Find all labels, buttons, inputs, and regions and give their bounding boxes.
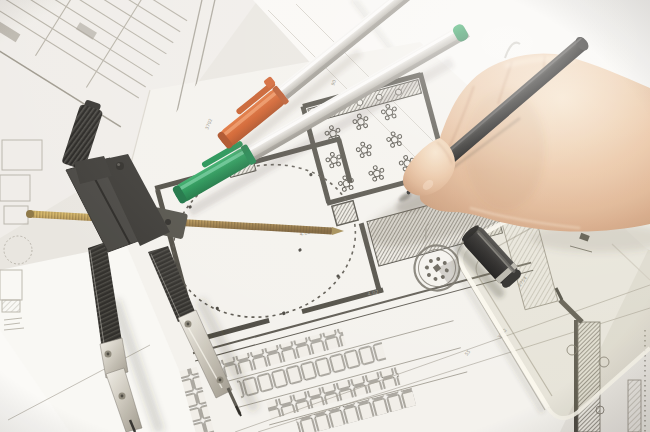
photo-canvas: 3702 365.2 90 4.82 4.02 2754 3762 55 — [0, 0, 650, 432]
photo-scene: 3702 365.2 90 4.82 4.02 2754 3762 55 — [0, 0, 650, 432]
